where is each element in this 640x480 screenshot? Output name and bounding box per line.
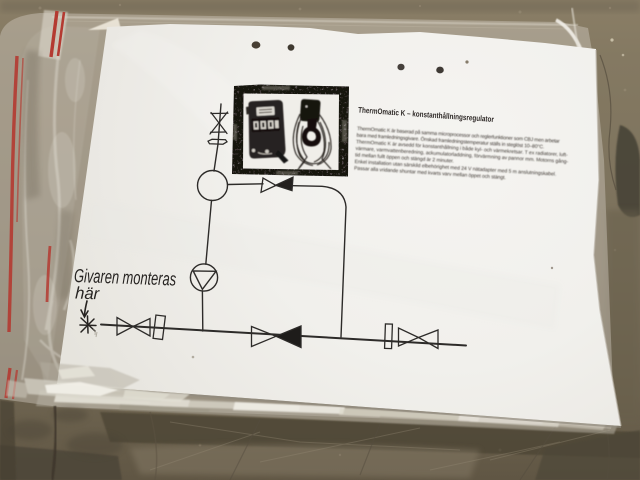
svg-text:här: här	[75, 284, 101, 304]
